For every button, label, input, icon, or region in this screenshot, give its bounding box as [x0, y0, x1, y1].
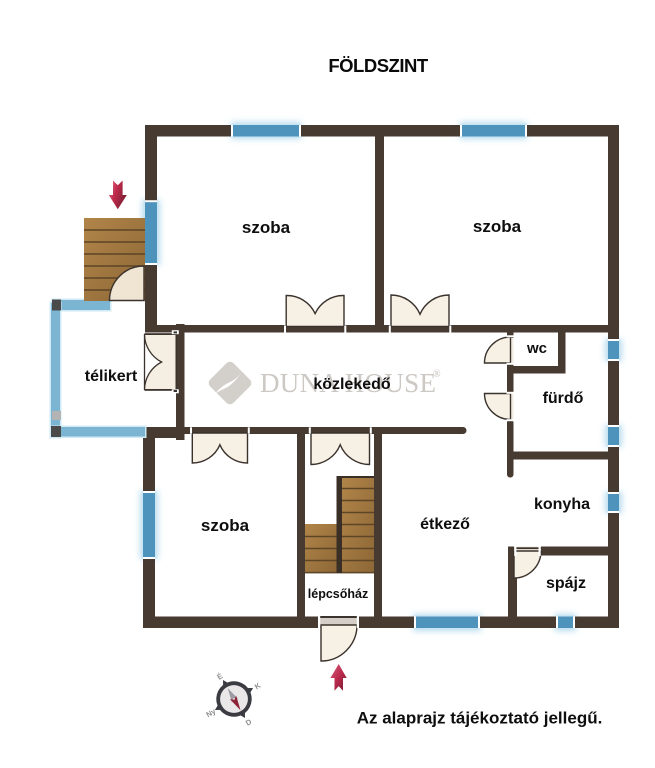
svg-text:télikert: télikert [85, 368, 138, 385]
svg-text:konyha: konyha [534, 496, 590, 513]
svg-text:spájz: spájz [546, 575, 586, 592]
svg-text:szoba: szoba [473, 217, 522, 236]
svg-text:fürdő: fürdő [543, 390, 584, 407]
svg-text:szoba: szoba [201, 516, 250, 535]
svg-text:étkező: étkező [420, 516, 470, 533]
svg-text:lépcsőház: lépcsőház [308, 587, 368, 601]
svg-text:közlekedő: közlekedő [313, 376, 391, 393]
svg-text:szoba: szoba [242, 218, 291, 237]
svg-text:®: ® [433, 369, 441, 380]
svg-text:wc: wc [526, 340, 547, 357]
svg-text:Az alaprajz tájékoztató jelleg: Az alaprajz tájékoztató jellegű. [357, 709, 603, 728]
svg-text:FÖLDSZINT: FÖLDSZINT [328, 55, 428, 76]
